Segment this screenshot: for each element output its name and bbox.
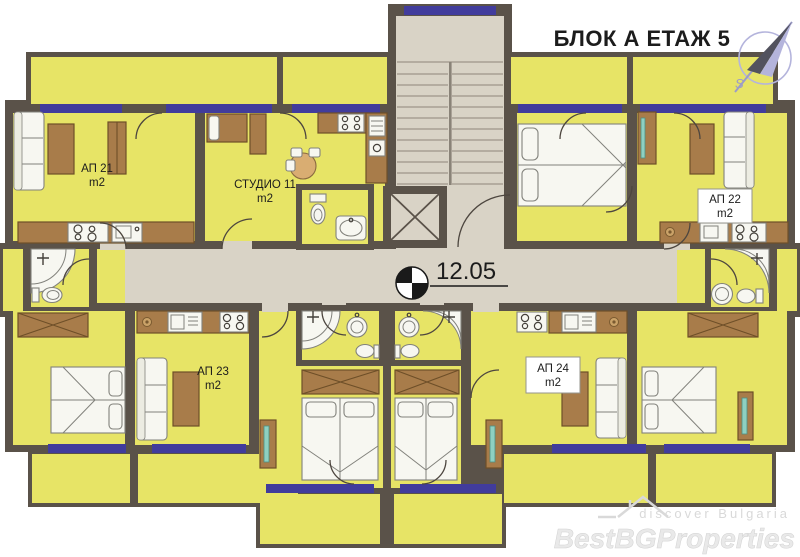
balcony-side-left (3, 249, 23, 311)
label-ap24-area: m2 (545, 377, 561, 389)
hall-left (97, 249, 125, 303)
compass-south-label: S (735, 76, 744, 91)
terrace-bottom-center-2 (394, 494, 502, 544)
label-ap22: АП 22 (709, 194, 741, 206)
center-bathrooms (296, 305, 465, 366)
terrace-bottom-right-2 (656, 454, 772, 503)
label-studio11-area: m2 (257, 193, 273, 205)
hall-right (677, 249, 705, 303)
label-ap22-area: m2 (717, 208, 733, 220)
label-studio11: СТУДИО 11 (234, 179, 296, 191)
bed-sw (51, 367, 125, 433)
watermark-brand: BestBGProperties (554, 523, 795, 554)
elevator (383, 186, 447, 248)
balcony-side-right (777, 249, 797, 311)
label-ap21: АП 21 (81, 163, 113, 175)
label-ap24: АП 24 (537, 363, 569, 375)
balcony-top-left-1 (31, 57, 277, 104)
watermark-tagline: discover Bulgaria (639, 506, 790, 521)
label-ap21-area: m2 (89, 177, 105, 189)
balcony-top-left-2 (283, 57, 387, 104)
floor-plan-page: 12.05 АП 21 m2 СТУДИО 11 m2 АП 22 m2 АП … (0, 0, 800, 557)
terrace-bottom-left-1 (32, 454, 130, 503)
bed-center-left (302, 398, 378, 480)
floor-plan: 12.05 АП 21 m2 СТУДИО 11 m2 АП 22 m2 АП … (0, 0, 800, 557)
terrace-bottom-right-1 (504, 454, 648, 503)
page-title: БЛОК А ЕТАЖ 5 (554, 26, 731, 51)
bed-center-right (395, 398, 457, 480)
bed-se (642, 367, 716, 433)
bed-ne (518, 124, 626, 206)
label-ap23: АП 23 (197, 366, 229, 378)
elevation-value: 12.05 (436, 258, 496, 285)
studio-bathroom (296, 184, 374, 250)
terrace-bottom-center-1 (260, 494, 380, 544)
balcony-top-right-1 (511, 57, 627, 104)
label-ap23-area: m2 (205, 380, 221, 392)
